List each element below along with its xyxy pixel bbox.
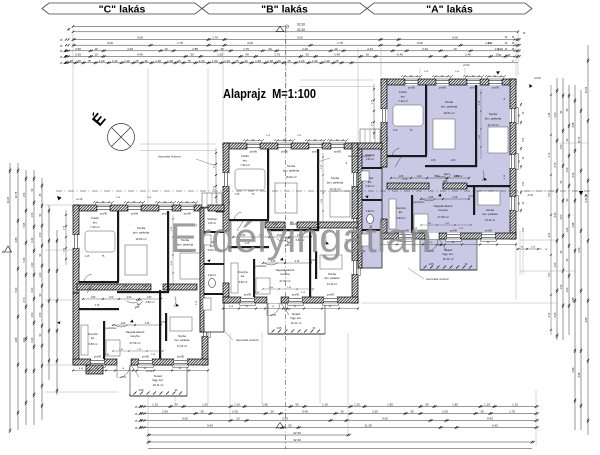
svg-text:Konyha: Konyha xyxy=(396,206,406,210)
svg-text:Szoba: Szoba xyxy=(137,226,146,230)
svg-text:75: 75 xyxy=(335,59,339,63)
svg-text:1.50: 1.50 xyxy=(39,232,42,237)
svg-text:4.88: 4.88 xyxy=(572,222,575,227)
svg-text:1.50: 1.50 xyxy=(31,212,34,217)
svg-text:27.09 m²: 27.09 m² xyxy=(129,341,140,345)
svg-text:1.60: 1.60 xyxy=(217,52,223,56)
svg-text:9.00: 9.00 xyxy=(107,41,113,45)
svg-text:ker.: ker. xyxy=(91,336,95,340)
svg-text:20.75: 20.75 xyxy=(578,136,581,143)
svg-text:7.22 m²: 7.22 m² xyxy=(240,163,250,167)
svg-text:27.09 m²: 27.09 m² xyxy=(437,215,448,219)
svg-text:1.85: 1.85 xyxy=(452,403,458,407)
svg-text:1.75: 1.75 xyxy=(177,41,183,45)
svg-text:Szoba: Szoba xyxy=(178,334,186,338)
svg-text:1.20: 1.20 xyxy=(199,59,205,63)
svg-text:32.30: 32.30 xyxy=(297,23,305,27)
svg-text:9.30: 9.30 xyxy=(572,172,575,177)
svg-text:konyha: konyha xyxy=(280,272,289,276)
svg-text:lam. parketta: lam. parketta xyxy=(133,231,150,235)
svg-text:13.13 m²: 13.13 m² xyxy=(327,282,337,286)
svg-text:pm/90: pm/90 xyxy=(142,355,150,359)
svg-text:Használati rendszer: Használati rendszer xyxy=(158,155,181,159)
svg-text:3.70: 3.70 xyxy=(554,162,557,167)
svg-text:1.20: 1.20 xyxy=(324,59,330,63)
svg-text:4.15: 4.15 xyxy=(95,304,100,307)
svg-text:30: 30 xyxy=(268,47,272,51)
svg-text:30: 30 xyxy=(480,410,484,414)
svg-text:Alaprajz M=1:100: Alaprajz M=1:100 xyxy=(223,86,316,101)
svg-text:9.00: 9.00 xyxy=(382,417,388,421)
svg-text:lam. parketta: lam. parketta xyxy=(325,276,341,280)
svg-text:1.00: 1.00 xyxy=(109,297,114,299)
svg-text:1.50: 1.50 xyxy=(566,287,569,292)
svg-text:30: 30 xyxy=(220,47,224,51)
svg-text:1.85: 1.85 xyxy=(192,47,198,51)
svg-text:ker.: ker. xyxy=(93,221,98,225)
svg-text:1.95: 1.95 xyxy=(506,55,511,57)
svg-text:padlófűtés: padlófűtés xyxy=(413,201,425,204)
svg-text:16.64 m²: 16.64 m² xyxy=(443,111,454,115)
svg-text:1.62 m²: 1.62 m² xyxy=(366,210,375,213)
svg-text:16.64 m²: 16.64 m² xyxy=(285,175,296,179)
svg-text:40: 40 xyxy=(177,59,181,63)
svg-text:4.88: 4.88 xyxy=(15,237,18,242)
svg-text:30: 30 xyxy=(270,410,274,414)
svg-text:2.30: 2.30 xyxy=(31,337,34,342)
svg-text:+0.53: +0.53 xyxy=(270,315,277,317)
svg-text:4.15: 4.15 xyxy=(145,323,150,325)
svg-text:+0.55: +0.55 xyxy=(160,321,167,324)
svg-text:32.30: 32.30 xyxy=(297,28,305,32)
svg-text:1.62 m²: 1.62 m² xyxy=(208,274,217,277)
svg-text:1.85: 1.85 xyxy=(262,403,268,407)
svg-text:pm/90: pm/90 xyxy=(244,293,252,297)
svg-text:1.48: 1.48 xyxy=(267,59,273,63)
svg-text:1.80: 1.80 xyxy=(399,176,404,178)
svg-text:pm/90: pm/90 xyxy=(450,229,458,233)
svg-text:2.40: 2.40 xyxy=(334,52,340,56)
svg-text:30: 30 xyxy=(410,410,414,414)
svg-text:Szoba: Szoba xyxy=(486,208,494,212)
svg-text:3.25: 3.25 xyxy=(23,222,26,227)
svg-text:1.80: 1.80 xyxy=(455,176,460,178)
svg-text:7.22 m²: 7.22 m² xyxy=(90,225,100,229)
svg-text:1.50: 1.50 xyxy=(31,312,34,317)
svg-text:Erdélyingatlan: Erdélyingatlan xyxy=(170,214,432,261)
svg-text:1.50: 1.50 xyxy=(549,192,551,197)
svg-text:6.83 m²: 6.83 m² xyxy=(239,280,248,284)
svg-text:4.88: 4.88 xyxy=(572,297,575,302)
svg-text:pm/90: pm/90 xyxy=(281,150,289,154)
svg-text:"B" lakás: "B" lakás xyxy=(261,3,308,15)
svg-text:3.70: 3.70 xyxy=(23,297,26,302)
svg-text:6.00: 6.00 xyxy=(417,41,423,45)
svg-text:1.48: 1.48 xyxy=(167,59,173,63)
svg-text:Fürdő: Fürdő xyxy=(399,90,407,94)
svg-text:4.15: 4.15 xyxy=(403,178,408,181)
svg-text:2.50: 2.50 xyxy=(162,410,168,414)
svg-text:Szoba: Szoba xyxy=(287,164,296,168)
svg-text:8.40: 8.40 xyxy=(487,417,493,421)
svg-text:21.05: 21.05 xyxy=(585,86,588,93)
svg-text:4.88: 4.88 xyxy=(585,317,588,322)
svg-text:2.40: 2.40 xyxy=(302,47,308,51)
svg-text:10.11 m²: 10.11 m² xyxy=(291,321,302,325)
svg-text:2.05: 2.05 xyxy=(429,197,434,199)
svg-text:1.20: 1.20 xyxy=(299,59,305,63)
svg-text:+0.53: +0.53 xyxy=(120,377,127,379)
svg-text:pm/90: pm/90 xyxy=(327,293,335,297)
svg-text:1.30: 1.30 xyxy=(212,59,218,63)
svg-text:1.50: 1.50 xyxy=(523,137,525,142)
svg-text:12.72 m²: 12.72 m² xyxy=(329,187,340,191)
svg-text:27.09 m²: 27.09 m² xyxy=(279,279,290,283)
svg-text:4.43: 4.43 xyxy=(367,47,373,51)
svg-text:2.30: 2.30 xyxy=(31,237,34,242)
svg-text:1.80: 1.80 xyxy=(123,285,128,288)
svg-text:4.88: 4.88 xyxy=(572,122,575,127)
svg-text:10: 10 xyxy=(164,47,168,51)
svg-text:1.50: 1.50 xyxy=(560,144,563,149)
svg-text:ker.: ker. xyxy=(401,95,406,99)
svg-text:2.05: 2.05 xyxy=(271,261,276,263)
svg-text:pm/90: pm/90 xyxy=(485,229,493,233)
svg-text:pm/90: pm/90 xyxy=(177,355,185,359)
svg-text:padlófűtés: padlófűtés xyxy=(105,327,117,330)
svg-text:20.75: 20.75 xyxy=(15,191,18,198)
svg-text:4.88: 4.88 xyxy=(15,337,18,342)
svg-text:25: 25 xyxy=(236,417,240,421)
svg-text:1.80: 1.80 xyxy=(451,159,456,162)
svg-text:1.10: 1.10 xyxy=(152,403,158,407)
svg-text:2.50: 2.50 xyxy=(372,410,378,414)
svg-text:pm/90: pm/90 xyxy=(439,86,447,90)
svg-text:2.40: 2.40 xyxy=(488,43,493,45)
svg-text:3.70: 3.70 xyxy=(549,152,551,157)
svg-text:40: 40 xyxy=(277,59,281,63)
svg-text:pm/90: pm/90 xyxy=(100,212,108,216)
svg-text:6.40: 6.40 xyxy=(137,52,143,56)
svg-text:1.80: 1.80 xyxy=(147,297,152,299)
svg-text:30: 30 xyxy=(305,52,309,56)
svg-text:"C" lakás: "C" lakás xyxy=(99,3,146,15)
svg-text:4.30: 4.30 xyxy=(23,337,26,342)
svg-text:+0.53: +0.53 xyxy=(146,369,153,373)
svg-text:1.75: 1.75 xyxy=(243,47,249,51)
svg-text:2.40: 2.40 xyxy=(465,52,471,56)
svg-text:1.20: 1.20 xyxy=(566,227,569,232)
svg-text:1.80: 1.80 xyxy=(431,159,436,162)
svg-text:Konyha: Konyha xyxy=(238,270,248,274)
svg-text:9.00: 9.00 xyxy=(137,36,143,40)
svg-text:13.13 m²: 13.13 m² xyxy=(177,344,187,348)
svg-text:Fürdő: Fürdő xyxy=(241,154,249,158)
svg-text:75: 75 xyxy=(287,59,291,63)
svg-text:Szoba: Szoba xyxy=(445,100,454,104)
svg-text:5.30: 5.30 xyxy=(549,312,551,317)
svg-text:1.20: 1.20 xyxy=(31,262,34,267)
svg-text:6.82 m²: 6.82 m² xyxy=(146,300,155,304)
svg-text:16.64 m²: 16.64 m² xyxy=(135,237,146,241)
svg-text:1.20: 1.20 xyxy=(354,403,360,407)
svg-text:1.50: 1.50 xyxy=(560,284,563,289)
svg-text:1.20: 1.20 xyxy=(124,59,130,63)
svg-text:pm/90: pm/90 xyxy=(94,355,102,359)
svg-text:fagy. ker.: fagy. ker. xyxy=(290,316,301,320)
svg-text:3.00: 3.00 xyxy=(247,41,253,45)
svg-text:9.02: 9.02 xyxy=(297,36,303,40)
svg-text:75: 75 xyxy=(235,59,239,63)
svg-text:Használati rendszer: Használati rendszer xyxy=(236,338,259,342)
svg-text:10: 10 xyxy=(453,47,457,51)
svg-text:pm/90: pm/90 xyxy=(292,293,300,297)
svg-text:1.75: 1.75 xyxy=(212,36,218,40)
svg-text:lam. parketta: lam. parketta xyxy=(483,212,499,216)
svg-text:4.15: 4.15 xyxy=(453,197,458,199)
svg-text:1.20: 1.20 xyxy=(224,59,230,63)
svg-text:10: 10 xyxy=(94,47,98,51)
svg-text:40: 40 xyxy=(245,52,249,56)
svg-text:lam. parketta: lam. parketta xyxy=(175,338,191,342)
svg-text:1.50: 1.50 xyxy=(39,312,42,317)
svg-text:Fürdő: Fürdő xyxy=(91,216,99,220)
svg-text:1.15: 1.15 xyxy=(393,129,398,132)
svg-text:"A" lakás: "A" lakás xyxy=(426,3,473,15)
svg-text:Szoba: Szoba xyxy=(489,112,498,116)
svg-text:4.15: 4.15 xyxy=(295,261,300,263)
svg-text:50: 50 xyxy=(288,424,292,428)
svg-text:6.40: 6.40 xyxy=(397,52,403,56)
svg-text:Szoba: Szoba xyxy=(331,176,340,180)
svg-text:-0.04: -0.04 xyxy=(527,193,533,197)
svg-text:10: 10 xyxy=(334,47,338,51)
svg-text:1.50: 1.50 xyxy=(549,272,551,277)
svg-text:5.06 m²: 5.06 m² xyxy=(366,184,375,188)
svg-text:75: 75 xyxy=(187,59,191,63)
svg-text:1.15: 1.15 xyxy=(85,255,90,258)
svg-text:1.75: 1.75 xyxy=(337,41,343,45)
svg-text:1.48: 1.48 xyxy=(67,59,73,63)
svg-text:padlófűtés: padlófűtés xyxy=(255,265,267,268)
svg-text:9.30: 9.30 xyxy=(15,287,18,292)
svg-text:40: 40 xyxy=(77,59,81,63)
svg-text:ker.: ker. xyxy=(241,274,245,278)
svg-text:90: 90 xyxy=(295,403,299,407)
svg-text:1.50: 1.50 xyxy=(566,167,569,172)
svg-text:10: 10 xyxy=(94,52,98,56)
svg-text:2.05: 2.05 xyxy=(121,323,126,325)
svg-text:2.05: 2.05 xyxy=(282,417,288,421)
svg-text:2.50: 2.50 xyxy=(75,52,81,56)
svg-text:konyha: konyha xyxy=(130,334,139,338)
svg-text:1.30: 1.30 xyxy=(312,59,318,63)
svg-text:1.48: 1.48 xyxy=(255,59,261,63)
svg-text:2.50: 2.50 xyxy=(75,47,81,51)
svg-text:2.00: 2.00 xyxy=(435,176,440,178)
svg-text:3.00: 3.00 xyxy=(31,287,34,292)
svg-text:4.05: 4.05 xyxy=(276,326,282,330)
svg-text:1.20: 1.20 xyxy=(99,59,105,63)
svg-text:1.50: 1.50 xyxy=(554,112,557,117)
svg-text:pm/90: pm/90 xyxy=(334,150,342,154)
svg-text:Használati rendszer: Használati rendszer xyxy=(348,154,371,158)
svg-text:2.00: 2.00 xyxy=(127,297,132,299)
svg-text:40: 40 xyxy=(244,59,248,63)
svg-text:4.88: 4.88 xyxy=(572,367,575,372)
svg-text:9.60: 9.60 xyxy=(207,424,213,428)
svg-text:1.45: 1.45 xyxy=(549,112,551,117)
svg-text:lam. parketta: lam. parketta xyxy=(441,105,458,109)
svg-text:ker.: ker. xyxy=(243,159,248,163)
svg-text:Konyha: Konyha xyxy=(88,332,98,336)
svg-text:2.05: 2.05 xyxy=(232,410,238,414)
svg-text:lam. parketta: lam. parketta xyxy=(485,117,502,121)
svg-text:11.38: 11.38 xyxy=(364,424,372,428)
svg-text:Használati rendszer: Használati rendszer xyxy=(426,277,449,281)
svg-text:Szoba: Szoba xyxy=(328,272,336,276)
svg-text:1.30: 1.30 xyxy=(112,59,118,63)
svg-text:fagy. ker.: fagy. ker. xyxy=(442,252,453,256)
svg-text:3.25: 3.25 xyxy=(554,312,557,317)
svg-text:13.13 m²: 13.13 m² xyxy=(485,218,495,222)
svg-text:+0.55: +0.55 xyxy=(468,195,475,198)
svg-text:1.15: 1.15 xyxy=(235,193,240,196)
svg-text:4.05: 4.05 xyxy=(138,388,144,392)
svg-text:1.10: 1.10 xyxy=(512,403,518,407)
svg-text:1.20: 1.20 xyxy=(39,272,42,277)
svg-text:pm/90: pm/90 xyxy=(408,86,416,90)
svg-text:1.85: 1.85 xyxy=(387,403,393,407)
svg-text:2.25 m²: 2.25 m² xyxy=(366,158,374,161)
svg-text:6.40: 6.40 xyxy=(302,410,308,414)
svg-text:1.10: 1.10 xyxy=(234,403,240,407)
svg-text:30: 30 xyxy=(190,52,194,56)
svg-text:6.40: 6.40 xyxy=(492,424,498,428)
svg-text:pm/90: pm/90 xyxy=(250,150,258,154)
svg-text:10: 10 xyxy=(365,52,369,56)
svg-text:+0.00: +0.00 xyxy=(533,76,541,80)
svg-text:7.22 m²: 7.22 m² xyxy=(398,99,408,103)
svg-text:30: 30 xyxy=(340,410,344,414)
svg-text:1.80: 1.80 xyxy=(143,285,148,288)
svg-text:2.05: 2.05 xyxy=(442,410,448,414)
svg-text:1.10: 1.10 xyxy=(322,403,328,407)
svg-text:4.30: 4.30 xyxy=(127,47,133,51)
svg-text:lam. parketta: lam. parketta xyxy=(327,181,344,185)
svg-text:40: 40 xyxy=(144,59,148,63)
svg-text:1.50: 1.50 xyxy=(23,192,26,197)
svg-text:90: 90 xyxy=(425,403,429,407)
svg-text:6.00: 6.00 xyxy=(182,417,188,421)
svg-text:pm/90: pm/90 xyxy=(492,86,500,90)
svg-text:1.20: 1.20 xyxy=(202,403,208,407)
svg-text:+0.16: +0.16 xyxy=(76,197,83,201)
svg-text:1.50: 1.50 xyxy=(523,227,525,232)
svg-text:pm/90: pm/90 xyxy=(131,212,139,216)
svg-text:3.00: 3.00 xyxy=(560,214,563,219)
svg-text:4.88: 4.88 xyxy=(578,372,581,377)
svg-text:21.05: 21.05 xyxy=(7,196,10,203)
svg-text:9.30: 9.30 xyxy=(578,247,581,252)
svg-text:2.40: 2.40 xyxy=(422,47,428,51)
svg-text:1.48: 1.48 xyxy=(155,59,161,63)
svg-text:1.00: 1.00 xyxy=(417,176,422,178)
svg-text:6.83 m²: 6.83 m² xyxy=(89,342,98,346)
svg-text:4.05: 4.05 xyxy=(428,262,434,266)
svg-text:konyha: konyha xyxy=(438,208,447,212)
svg-text:1.80: 1.80 xyxy=(91,297,96,299)
svg-text:fagy. ker.: fagy. ker. xyxy=(152,378,163,382)
svg-text:30: 30 xyxy=(200,410,204,414)
svg-text:32.30: 32.30 xyxy=(293,431,301,435)
svg-text:1.50: 1.50 xyxy=(523,181,525,186)
svg-text:1.20: 1.20 xyxy=(484,403,490,407)
svg-text:9.00: 9.00 xyxy=(452,36,458,40)
svg-text:4.30: 4.30 xyxy=(554,212,557,217)
svg-text:2.40: 2.40 xyxy=(495,49,500,51)
svg-text:10.11 m²: 10.11 m² xyxy=(153,383,164,387)
svg-text:Közl.: Közl. xyxy=(444,172,450,176)
svg-text:1.75: 1.75 xyxy=(509,410,515,414)
svg-text:10.11 m²: 10.11 m² xyxy=(443,257,454,261)
svg-text:4.30: 4.30 xyxy=(549,232,551,237)
svg-text:1.75: 1.75 xyxy=(274,52,280,56)
svg-text:12.72 m²: 12.72 m² xyxy=(487,123,498,127)
svg-text:+0.00: +0.00 xyxy=(463,63,470,67)
svg-text:32.30: 32.30 xyxy=(293,438,301,442)
svg-text:5.30: 5.30 xyxy=(23,257,26,262)
svg-text:1.50: 1.50 xyxy=(554,262,557,267)
svg-text:75: 75 xyxy=(87,59,91,63)
svg-text:75: 75 xyxy=(135,59,139,63)
